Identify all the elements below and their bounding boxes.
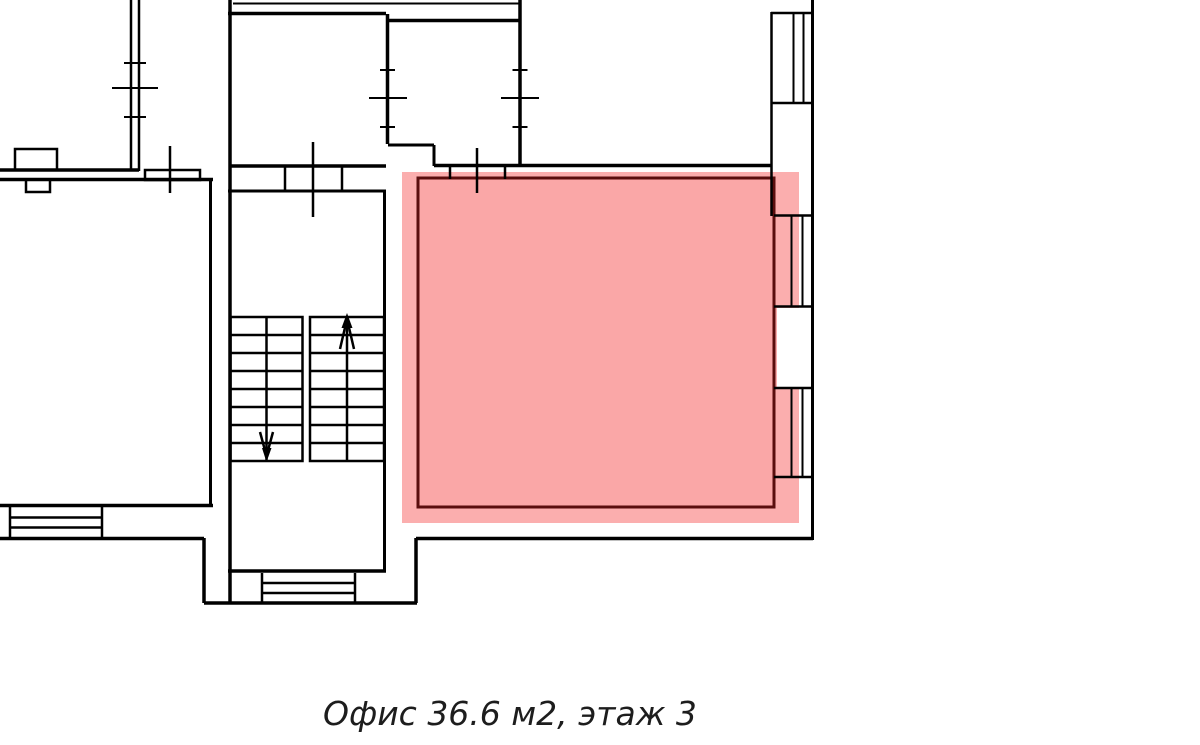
window-bay-1 [771, 13, 813, 103]
stair-flight-right [310, 317, 384, 461]
office-highlight [418, 178, 774, 507]
small-block [26, 180, 50, 192]
floor-plan [0, 0, 1200, 745]
stair-exit-steps [262, 573, 355, 603]
door-mark-stairwell [285, 142, 342, 217]
stair-flight-left [231, 317, 303, 461]
floor-plan-page: Офис 36.6 м2, этаж 3 [0, 0, 1200, 745]
wall-segment-mask [777, 308, 811, 387]
entrance-porch-steps [10, 507, 102, 538]
window-icon-left-wall [112, 63, 158, 117]
plan-caption: Офис 36.6 м2, этаж 3 [300, 694, 720, 733]
chimney-block [15, 149, 57, 171]
stairs [231, 313, 385, 462]
